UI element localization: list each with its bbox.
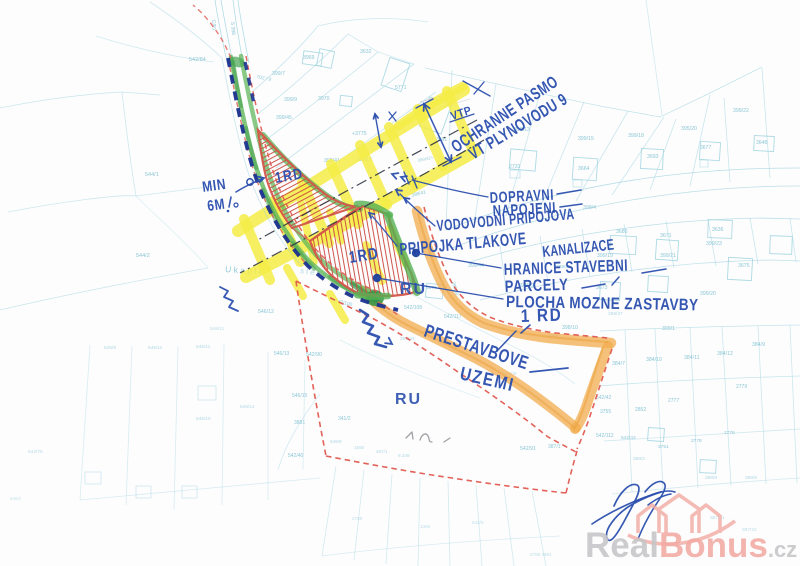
svg-text:544/1: 544/1 [145, 172, 159, 178]
svg-text:546/12: 546/12 [258, 309, 274, 315]
svg-text:399/18: 399/18 [628, 133, 644, 139]
svg-text:546/15: 546/15 [292, 393, 308, 399]
svg-text:546/11: 546/11 [210, 326, 225, 332]
svg-text:1369: 1369 [420, 524, 431, 529]
svg-text:6M: 6M [206, 195, 226, 214]
svg-text:2777: 2777 [668, 398, 679, 404]
svg-text:384/9: 384/9 [752, 342, 765, 348]
svg-text:+3775: +3775 [352, 131, 367, 137]
svg-text:542/75: 542/75 [28, 449, 43, 455]
svg-text:546/11: 546/11 [148, 345, 163, 351]
svg-text:399/20: 399/20 [700, 291, 716, 297]
svg-text:MIN: MIN [201, 176, 227, 196]
svg-text:546/9: 546/9 [104, 345, 116, 351]
svg-text:542/91: 542/91 [520, 446, 536, 452]
svg-text:542/112: 542/112 [596, 433, 614, 439]
svg-text:3755: 3755 [600, 409, 611, 415]
svg-text:384/12: 384/12 [717, 351, 733, 357]
svg-text:546/2: 546/2 [10, 496, 22, 501]
svg-text:542/42: 542/42 [596, 395, 612, 401]
svg-text:388/2: 388/2 [633, 456, 645, 462]
svg-text:546/13: 546/13 [274, 351, 290, 357]
svg-text:546/11: 546/11 [196, 344, 211, 350]
svg-text:3751: 3751 [658, 444, 669, 450]
svg-text:3693: 3693 [647, 154, 659, 160]
svg-text:399/4: 399/4 [583, 205, 596, 211]
svg-text:546/10: 546/10 [196, 416, 211, 422]
svg-text:3671: 3671 [660, 233, 672, 239]
svg-text:2789: 2789 [352, 516, 363, 521]
svg-text:387/1: 387/1 [548, 444, 561, 450]
svg-text:399/45: 399/45 [276, 115, 292, 121]
svg-text:RU: RU [395, 391, 422, 408]
svg-text:3664: 3664 [578, 166, 590, 172]
svg-text:549/8: 549/8 [330, 439, 342, 444]
svg-text:2776: 2776 [724, 430, 735, 436]
svg-text:384/7: 384/7 [612, 361, 625, 367]
svg-text:544/2: 544/2 [136, 253, 150, 259]
svg-text:2785 4961: 2785 4961 [530, 552, 552, 557]
svg-text:384/10: 384/10 [646, 357, 662, 363]
svg-text:399/15: 399/15 [578, 136, 594, 142]
svg-text:1550: 1550 [354, 445, 365, 450]
svg-text:388/9: 388/9 [705, 475, 717, 481]
svg-text:3636: 3636 [712, 227, 724, 233]
svg-text:399/9: 399/9 [284, 97, 297, 103]
svg-text:399/7: 399/7 [272, 71, 285, 77]
svg-text:3969: 3969 [303, 55, 315, 61]
svg-text:341/2: 341/2 [338, 416, 351, 422]
svg-text:2779: 2779 [736, 384, 747, 390]
svg-text:S 398: S 398 [229, 22, 236, 36]
svg-text:3686: 3686 [616, 229, 628, 235]
svg-text:398/8: 398/8 [745, 475, 757, 481]
svg-text:399/1: 399/1 [662, 326, 675, 332]
svg-text:2852: 2852 [635, 407, 646, 413]
svg-text:399/21: 399/21 [660, 253, 676, 259]
svg-text:RealBonus.cz: RealBonus.cz [585, 526, 797, 565]
svg-text:9.349: 9.349 [398, 453, 410, 458]
svg-text:3632: 3632 [360, 49, 372, 55]
svg-text:546/14: 546/14 [240, 404, 255, 410]
svg-text:399/23: 399/23 [706, 241, 722, 247]
svg-text:384/11: 384/11 [684, 355, 700, 361]
svg-text:542/84: 542/84 [189, 57, 206, 63]
svg-text:542/40: 542/40 [288, 453, 304, 459]
svg-text:395/20: 395/20 [681, 126, 697, 132]
svg-text:542/43: 542/43 [621, 435, 636, 441]
svg-text:1 RD: 1 RD [520, 304, 562, 326]
svg-text:RU: RU [400, 281, 427, 298]
svg-text:C/91: C/91 [210, 20, 217, 31]
svg-text:287/1: 287/1 [376, 449, 388, 454]
svg-text:3648: 3648 [756, 140, 767, 146]
svg-text:542/5: 542/5 [472, 520, 484, 525]
svg-text:3677: 3677 [700, 145, 711, 151]
svg-text:3970: 3970 [318, 96, 330, 102]
svg-text:399/22: 399/22 [733, 108, 749, 114]
svg-text:542/108: 542/108 [404, 305, 422, 311]
svg-text:3675: 3675 [738, 263, 750, 269]
svg-text:2778: 2778 [691, 438, 702, 444]
svg-text:398/10: 398/10 [562, 325, 578, 331]
